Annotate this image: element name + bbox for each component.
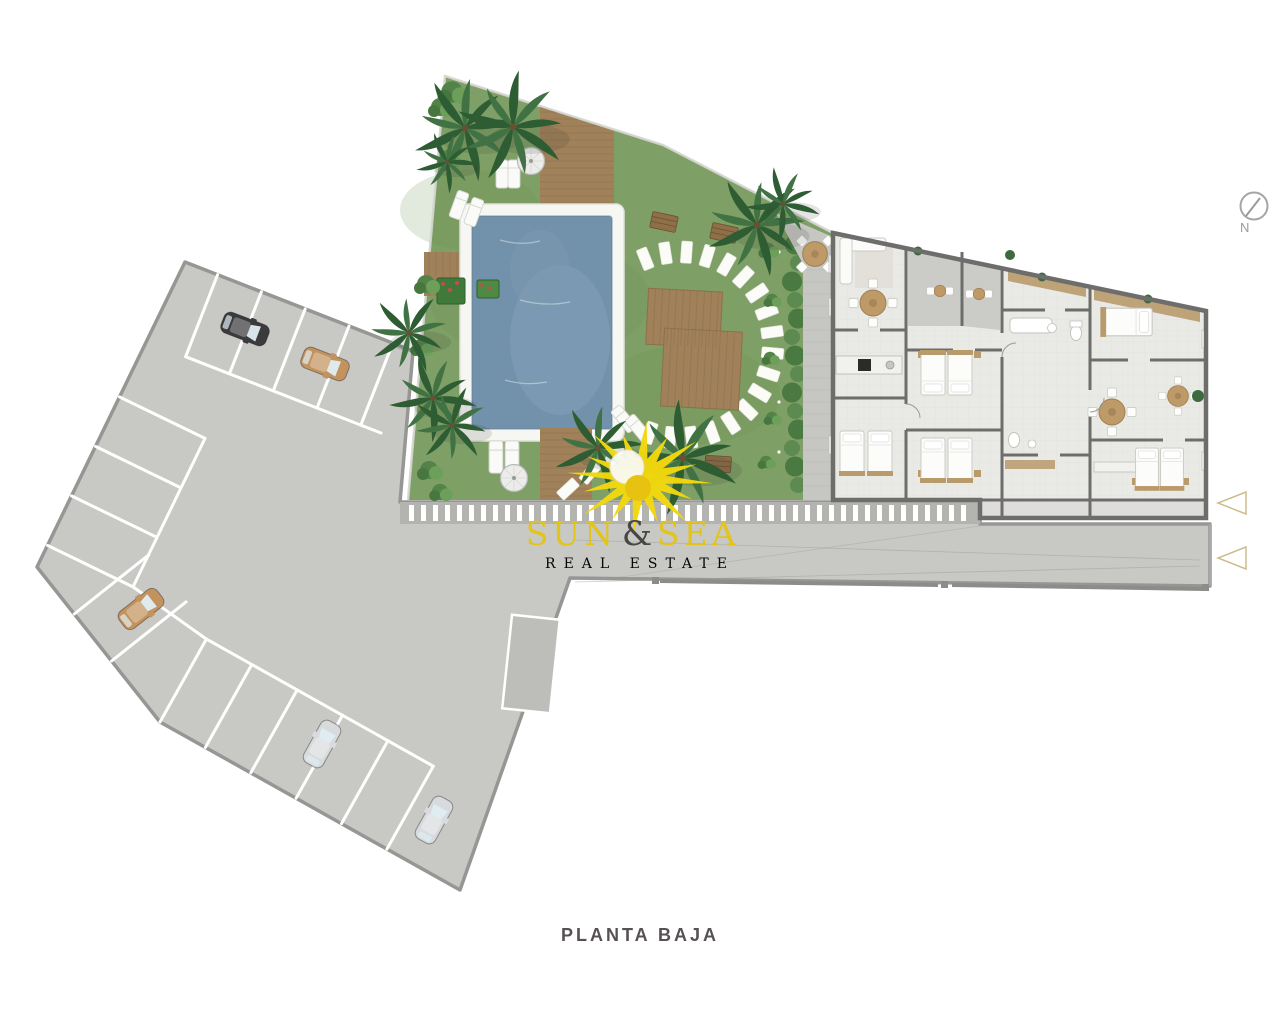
toilet (1009, 433, 1020, 448)
paving-stripe (925, 505, 930, 521)
terrace-table-small (927, 285, 954, 296)
plant-icon (1192, 390, 1204, 402)
bed (947, 438, 973, 483)
site-plan: N SUN & SEA REAL ESTATE PLANTA BAJA (0, 0, 1280, 1024)
washbasin (1048, 324, 1057, 333)
nightstand (974, 470, 981, 477)
sun-glow (625, 475, 651, 501)
stepping-stone (680, 241, 693, 264)
page-title: PLANTA BAJA (561, 925, 719, 945)
nightstand (974, 351, 981, 358)
entrance-arrow-icon (1218, 547, 1246, 569)
plant-icon (1005, 250, 1015, 260)
paving-stripe (877, 505, 882, 521)
hedge-bush (782, 383, 802, 403)
bed (920, 438, 946, 483)
paving-stripe (805, 505, 810, 521)
paving-stripe (469, 505, 474, 521)
cooktop (858, 359, 871, 371)
washbasin (1028, 440, 1036, 448)
paving-stripe (781, 505, 786, 521)
garden-area (356, 53, 847, 538)
hedge-bush (782, 272, 802, 292)
paving-stripe (457, 505, 462, 521)
parking-ramp (502, 615, 560, 714)
north-indicator: N (1240, 193, 1268, 236)
paving-stripe (865, 505, 870, 521)
paving-stripe (757, 505, 762, 521)
hedge-bush (787, 292, 803, 308)
bed (1160, 448, 1185, 491)
paving-stripe (913, 505, 918, 521)
kitchen-counter (1094, 462, 1140, 472)
bathtub (1010, 318, 1052, 333)
logo-word1: SUN (526, 514, 617, 553)
bed (920, 350, 946, 395)
wardrobe (1005, 460, 1055, 469)
hedge-bush (785, 346, 805, 366)
paving-stripe (889, 505, 894, 521)
entrance-arrow-icon (1218, 492, 1246, 514)
paving-stripe (949, 505, 954, 521)
bed (947, 350, 973, 395)
paving-stripe (421, 505, 426, 521)
path-light (777, 450, 780, 453)
entrance-arrows (1218, 492, 1246, 569)
paving-stripe (853, 505, 858, 521)
hedge-bush (784, 329, 800, 345)
hedge-bush (785, 457, 805, 477)
paving-stripe (793, 505, 798, 521)
paving-stripe (505, 505, 510, 521)
paving-stripe (445, 505, 450, 521)
toilet (1071, 326, 1082, 341)
floor-plan-page: N SUN & SEA REAL ESTATE PLANTA BAJA (0, 0, 1280, 1024)
sink (886, 361, 894, 369)
north-label: N (1240, 220, 1249, 235)
toilet-tank (1070, 321, 1082, 327)
paving-stripe (409, 505, 414, 521)
paving-stripe (937, 505, 942, 521)
logo-ampersand: & (622, 514, 652, 554)
bed (867, 431, 893, 476)
entrance-strip (980, 500, 1206, 518)
paving-stripe (961, 505, 966, 521)
paving-stripe (841, 505, 846, 521)
logo-word2: SEA (657, 514, 740, 553)
paving-stripe (745, 505, 750, 521)
paving-stripe (829, 505, 834, 521)
hedge-bush (784, 440, 800, 456)
apartment-building (829, 233, 1207, 518)
paving-stripe (901, 505, 906, 521)
bed (1135, 448, 1160, 491)
bed (1100, 307, 1152, 337)
terrace-table-small (966, 288, 993, 299)
swimming-pool (460, 204, 624, 441)
logo-tagline: REAL ESTATE (545, 556, 735, 572)
path-light (777, 350, 780, 353)
paving-stripe (769, 505, 774, 521)
sofa (840, 238, 852, 284)
bed (839, 431, 865, 476)
paving-stripe (433, 505, 438, 521)
path-light (777, 400, 780, 403)
paving-stripe (517, 505, 522, 521)
paving-stripe (817, 505, 822, 521)
hedge-bush (787, 403, 803, 419)
paving-stripe (493, 505, 498, 521)
paving-stripe (481, 505, 486, 521)
